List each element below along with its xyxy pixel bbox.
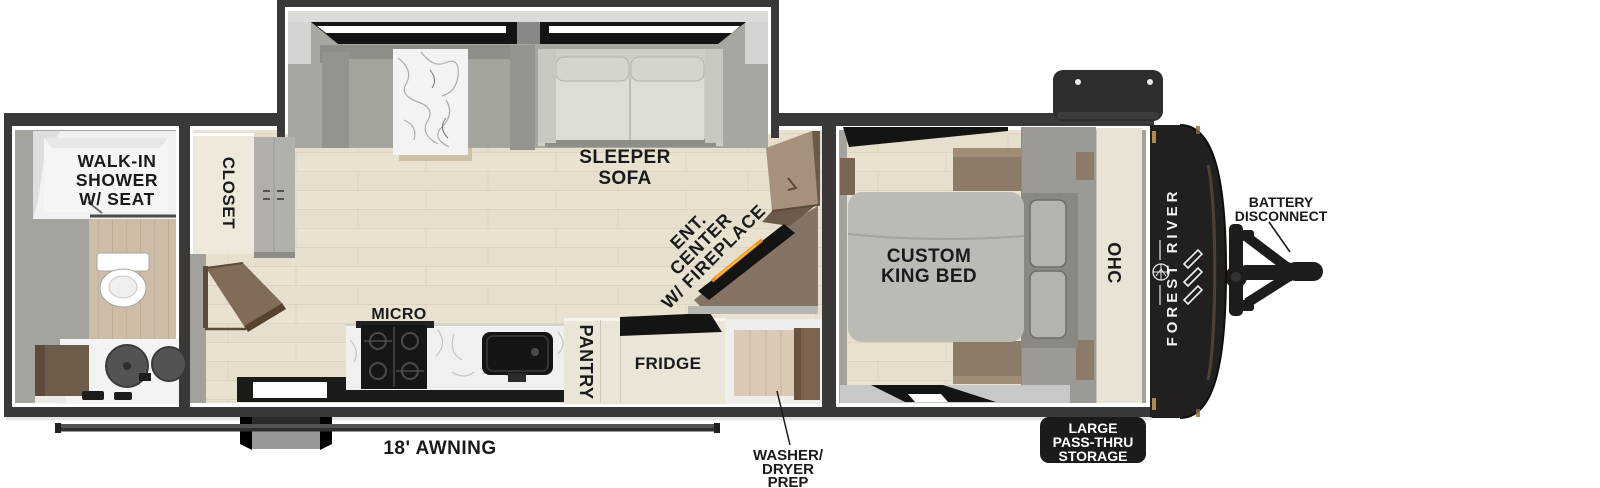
- svg-text:CLOSET: CLOSET: [219, 157, 238, 230]
- svg-text:SHOWER: SHOWER: [76, 170, 158, 190]
- svg-text:SOFA: SOFA: [598, 168, 651, 189]
- svg-text:CUSTOM: CUSTOM: [887, 246, 971, 267]
- svg-text:DISCONNECT: DISCONNECT: [1235, 208, 1328, 224]
- svg-text:W/ SEAT: W/ SEAT: [79, 189, 155, 209]
- svg-text:KING BED: KING BED: [881, 266, 977, 287]
- svg-text:OHC: OHC: [1104, 242, 1124, 284]
- svg-text:18' AWNING: 18' AWNING: [383, 438, 496, 459]
- svg-text:STORAGE: STORAGE: [1059, 448, 1128, 464]
- svg-text:PANTRY: PANTRY: [576, 325, 596, 400]
- svg-text:FRIDGE: FRIDGE: [635, 354, 702, 373]
- svg-text:FOREST RIVER: FOREST RIVER: [1164, 188, 1181, 347]
- svg-text:SLEEPER: SLEEPER: [579, 147, 671, 168]
- svg-text:MICRO: MICRO: [371, 306, 426, 323]
- svg-text:WALK-IN: WALK-IN: [77, 151, 156, 171]
- svg-text:PREP: PREP: [768, 474, 809, 488]
